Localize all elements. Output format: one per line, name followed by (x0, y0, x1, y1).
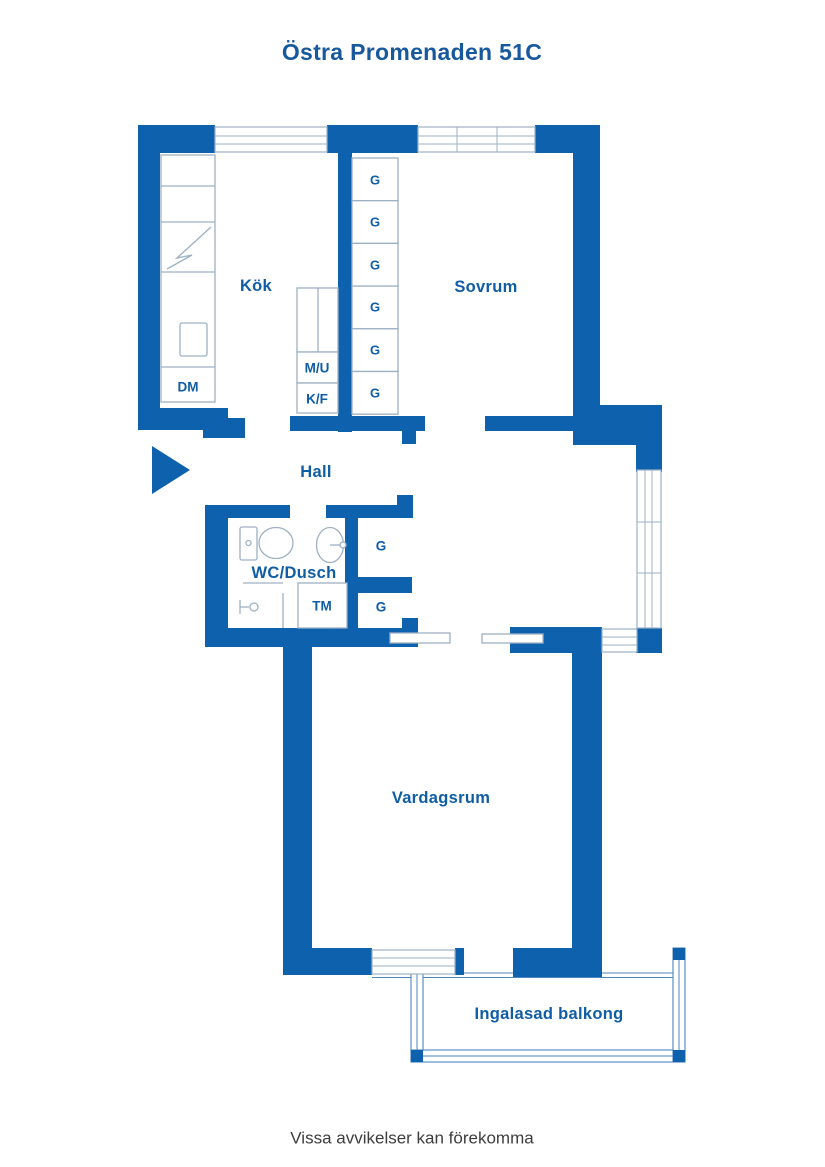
window-bedroom (418, 127, 535, 152)
disclaimer-text: Vissa avvikelser kan förekomma (290, 1129, 534, 1148)
dishwasher-label: DM (178, 380, 199, 395)
bathroom-sink (317, 528, 347, 563)
bathroom-label: WC/Dusch (252, 564, 337, 582)
window-kitchen (215, 127, 327, 152)
wardrobe-label: G (376, 600, 387, 615)
balcony-label: Ingalasad balkong (474, 1005, 623, 1023)
floor-plan-page: Östra Promenaden 51C (0, 0, 825, 1167)
shower-fixture (240, 583, 283, 628)
microwave-oven-label: M/U (305, 361, 330, 376)
wardrobe-label: G (370, 386, 380, 401)
window-living-room (372, 950, 455, 974)
sliding-door-leaf (390, 633, 450, 643)
toilet (240, 527, 293, 560)
wardrobe-column: G G G G G G (352, 158, 398, 414)
wardrobe-label: G (370, 215, 380, 230)
balcony-post (411, 1050, 423, 1062)
entrance-arrow-icon (152, 446, 190, 494)
hall-label: Hall (300, 463, 331, 481)
wardrobe-label: G (370, 343, 380, 358)
fridge-freezer-label: K/F (306, 392, 328, 407)
living-room-label: Vardagsrum (392, 789, 490, 807)
walls (138, 125, 685, 1062)
pantry-cabinet (297, 288, 338, 352)
balcony-post (673, 948, 685, 960)
window-dining (602, 629, 637, 652)
window-side (637, 470, 661, 628)
wardrobe-label: G (370, 258, 380, 273)
kitchen-label: Kök (240, 277, 273, 295)
balcony-post (673, 1050, 685, 1062)
wardrobe-label: G (370, 173, 380, 188)
bedroom-label: Sovrum (454, 278, 517, 296)
kitchen-sink (180, 323, 207, 356)
wardrobe-label: G (376, 539, 387, 554)
floor-plan-drawing: Östra Promenaden 51C (0, 0, 825, 1167)
wardrobe-label: G (370, 300, 380, 315)
page-title: Östra Promenaden 51C (282, 39, 542, 65)
washing-machine-label: TM (312, 599, 332, 614)
sliding-door-leaf (482, 634, 543, 643)
kitchen-counter (161, 155, 215, 402)
